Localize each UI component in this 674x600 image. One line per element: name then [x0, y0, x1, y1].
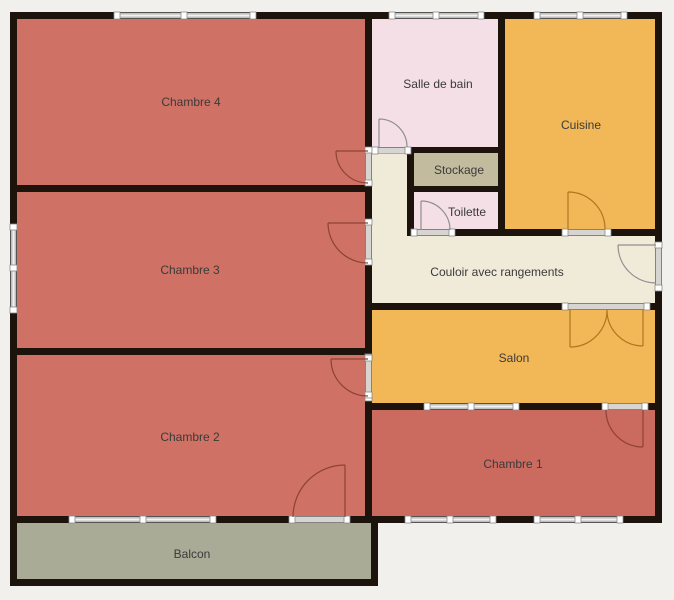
threshold-chambre-3 — [365, 219, 372, 265]
window-chambre2-balcon — [69, 516, 216, 523]
wall-chambre4-chambre3 — [10, 185, 372, 192]
room-label-chambre-2: Chambre 2 — [160, 430, 220, 444]
window-chambre1-south-east — [534, 516, 623, 523]
threshold-salle-de-bain — [372, 147, 411, 154]
threshold-chambre-2 — [365, 355, 372, 398]
threshold-chambre-4 — [365, 147, 372, 186]
room-label-cuisine: Cuisine — [561, 118, 601, 132]
room-label-salon: Salon — [499, 351, 530, 365]
threshold-chambre-1 — [602, 403, 648, 410]
room-floors — [17, 19, 655, 579]
room-label-salle-de-bain: Salle de bain — [403, 77, 472, 91]
threshold-salon — [562, 303, 650, 310]
threshold-toilette — [411, 229, 455, 236]
wall-stockage-toilette — [407, 186, 505, 192]
wall-chambre3-chambre2 — [10, 348, 372, 355]
threshold-cuisine — [562, 229, 611, 236]
window-cuisine-north — [534, 12, 627, 19]
room-couloir-strip — [372, 153, 407, 303]
threshold-balcon — [289, 516, 350, 523]
room-label-chambre-4: Chambre 4 — [161, 95, 221, 109]
room-label-toilette: Toilette — [448, 205, 486, 219]
window-salon-chambre1 — [424, 403, 519, 410]
window-salle-de-bain-north — [389, 12, 484, 19]
room-label-chambre-1: Chambre 1 — [483, 457, 543, 471]
room-label-stockage: Stockage — [434, 163, 484, 177]
wall-balcon-south — [10, 579, 378, 586]
room-label-balcon: Balcon — [174, 547, 211, 561]
window-chambre3-west — [10, 224, 17, 313]
room-label-chambre-3: Chambre 3 — [160, 263, 220, 277]
threshold-entree — [655, 242, 662, 291]
room-label-couloir: Couloir avec rangements — [430, 265, 563, 279]
wall-cuisine-west — [498, 12, 505, 236]
floor-plan: Chambre 4 Chambre 3 Chambre 2 Balcon Sal… — [0, 0, 674, 600]
wall-balcon-east — [371, 523, 378, 586]
wall-spine — [365, 12, 372, 523]
floor-plan-canvas: Chambre 4 Chambre 3 Chambre 2 Balcon Sal… — [0, 0, 674, 600]
window-chambre4-north — [114, 12, 256, 19]
window-chambre1-south-west — [405, 516, 496, 523]
